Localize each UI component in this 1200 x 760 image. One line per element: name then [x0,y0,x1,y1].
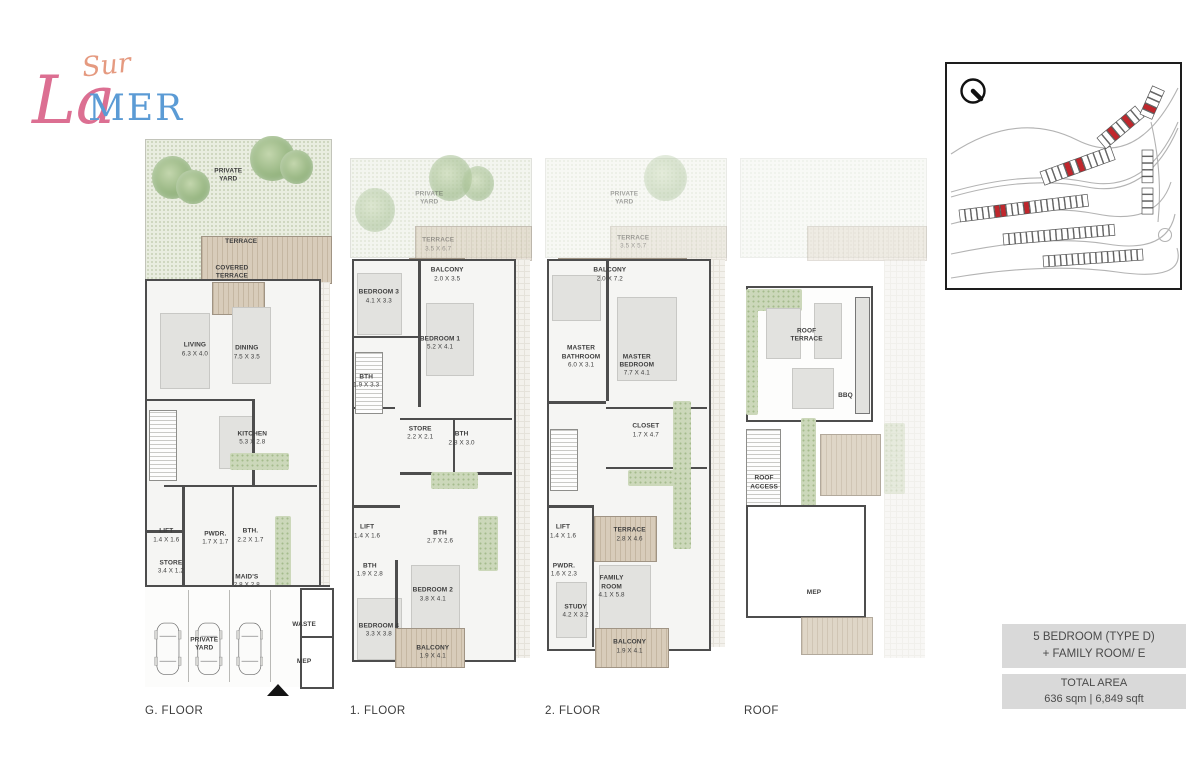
room-label: BALCONY1.9 X 4.1 [613,639,646,656]
room-label: ROOF TERRACE [791,327,823,344]
room-label: LIFT1.4 X 1.6 [354,524,380,541]
floor-caption-roof: ROOF [744,705,779,717]
room-label: BEDROOM 15.2 X 4.1 [420,335,460,352]
floor-plan-roof: ROOF TERRACEBBQROOF ACCESSMEP [740,155,925,702]
room-label: BALCONY1.9 X 4.1 [416,644,449,661]
room-label: CLOSET1.7 X 4.7 [632,423,659,440]
total-area-box: TOTAL AREA 636 sqm | 6,849 sqft [1002,674,1186,709]
room-label: BTH2.7 X 2.6 [427,530,453,547]
room-label: TERRACE [225,237,257,245]
room-label: PWDR.1.7 X 1.7 [202,531,228,548]
room-label: TERRACE3.5 X 5.7 [617,234,649,251]
room-label: STORE3.4 X 1.2 [158,559,184,576]
room-label: LIFT1.4 X 1.6 [550,524,576,541]
room-label: BEDROOM 23.8 X 4.1 [413,587,453,604]
room-label: MEP [807,588,821,596]
floor-caption-g: G. FLOOR [145,705,203,717]
room-label: PRIVATE YARD [214,167,242,184]
room-label: TERRACE3.5 X 6.7 [422,237,454,254]
floor-caption-2: 2. FLOOR [545,705,601,717]
room-label: LIVING6.3 X 4.0 [182,342,208,359]
room-label: LIFT1.4 X 1.6 [153,528,179,545]
room-label: STORE2.2 X 2.1 [407,426,433,443]
total-area-title: TOTAL AREA [1061,676,1127,691]
unit-type-box: 5 BEDROOM (TYPE D) + FAMILY ROOM/ E [1002,624,1186,668]
total-area-value: 636 sqm | 6,849 sqft [1044,692,1143,707]
brochure-page: La Sur MER [0,0,1200,760]
room-label: BTH1.9 X 2.8 [357,562,383,579]
room-label: ROOF ACCESS [750,475,778,492]
floor-plan-2: PRIVATE YARDTERRACE3.5 X 5.7BALCONY2.0 X… [545,155,725,702]
logo-sur-text: Sur [81,48,133,84]
room-label: BBQ [838,391,853,399]
room-label: WASTE [292,621,316,629]
room-label: MAID'S2.8 X 2.8 [234,574,260,591]
room-label: PRIVATE YARD [610,190,638,207]
room-label: KITCHEN5.3 X 2.8 [238,431,268,448]
room-label: PRIVATE YARD [415,190,443,207]
site-map-drawing [947,64,1180,288]
room-label: BALCONY2.0 X 3.5 [431,267,464,284]
room-label: MEP [297,658,311,666]
room-label: PWDR.1.6 X 2.3 [551,562,577,579]
room-label: PRIVATE YARD [190,636,218,653]
room-label: BTH.2.2 X 1.7 [237,528,263,545]
site-map [945,62,1182,290]
logo-mer-text: MER [88,88,184,129]
floor-plan-g: PRIVATE YARDTERRACECOVERED TERRACELIVING… [145,130,330,702]
room-label: STUDY4.2 X 3.2 [563,603,589,620]
room-label: MASTER BEDROOM7.7 X 4.1 [619,353,654,378]
room-label: MASTER BATHROOM6.0 X 3.1 [562,345,601,370]
unit-type-line1: 5 BEDROOM (TYPE D) [1033,629,1154,646]
compass-icon [962,80,985,103]
room-label: BTH2.8 X 3.0 [449,431,475,448]
room-label: BEDROOM 34.1 X 3.3 [359,289,399,306]
room-label: COVERED TERRACE [216,265,249,282]
room-label: BTH1.9 X 3.3 [353,374,379,391]
room-label: BALCONY2.0 X 7.2 [593,267,626,284]
room-label: BEDROOM 43.3 X 3.8 [359,623,399,640]
room-label: TERRACE2.8 X 4.6 [614,527,646,544]
floor-plan-1: PRIVATE YARDTERRACE3.5 X 6.7BALCONY2.0 X… [350,155,530,702]
room-label: DINING7.5 X 3.5 [234,345,260,362]
floor-caption-1: 1. FLOOR [350,705,406,717]
room-label: FAMILY ROOM4.1 X 5.8 [599,575,625,600]
unit-type-line2: + FAMILY ROOM/ E [1043,646,1146,663]
